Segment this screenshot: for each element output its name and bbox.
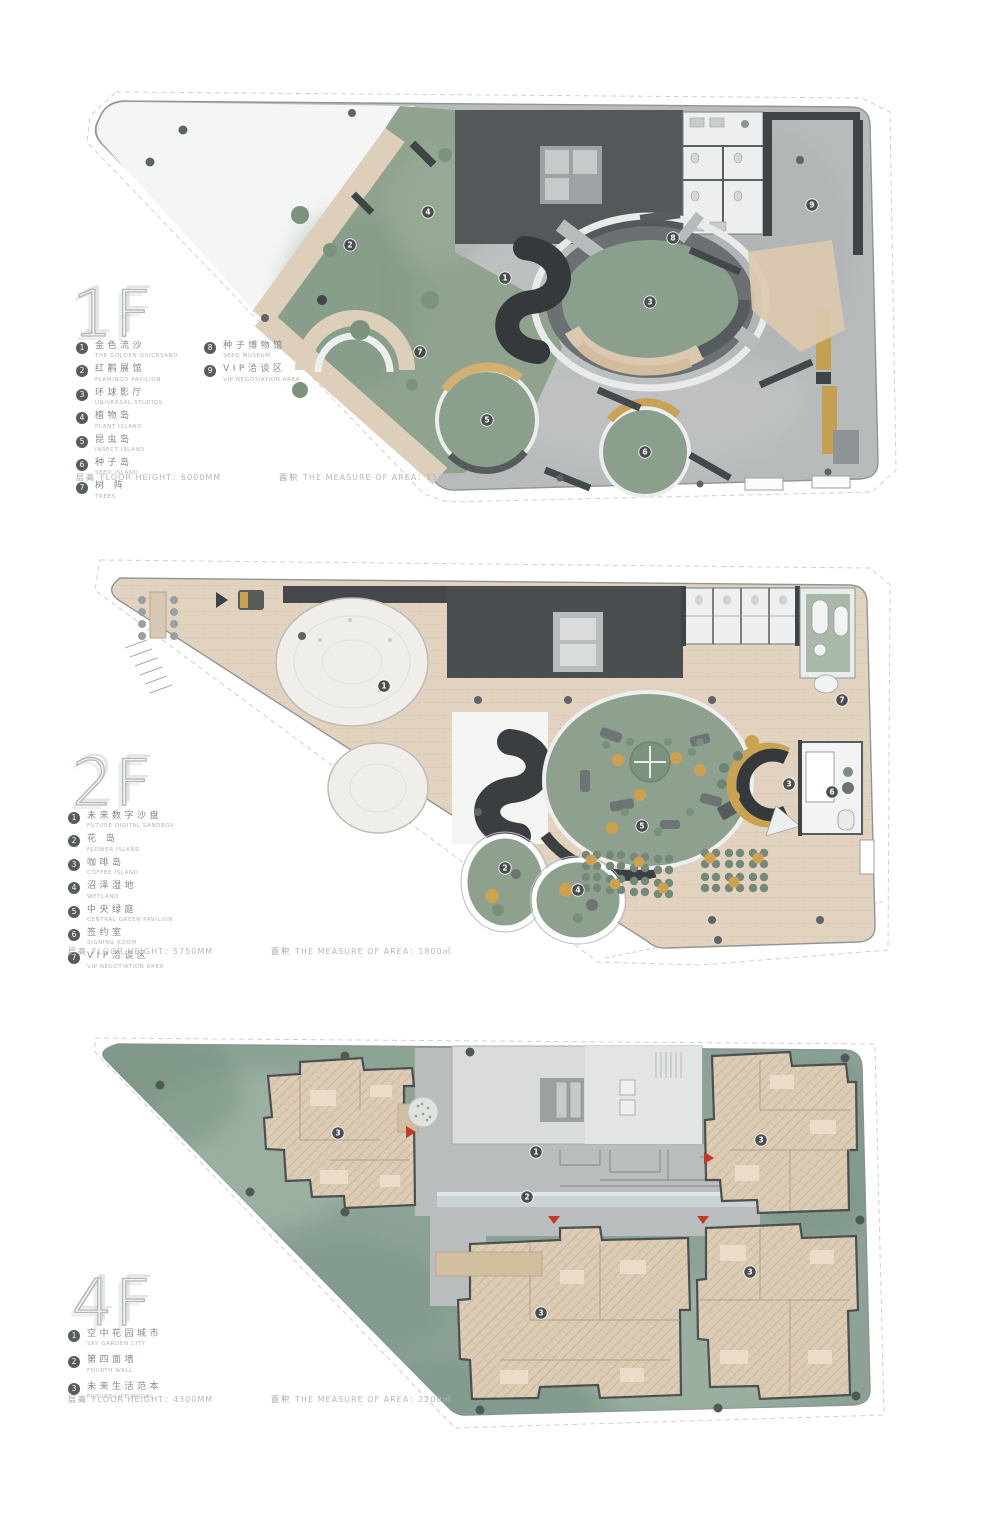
legend-item-en: PLANT ISLAND bbox=[95, 424, 142, 430]
legend-item: 3环球影厅UNIVERSAL STUDIOS bbox=[76, 389, 178, 406]
glass-bridge-highlight bbox=[437, 1192, 767, 1196]
legend-item-zh: 种子博物馆 bbox=[223, 342, 286, 352]
show-unit-d bbox=[697, 1224, 858, 1399]
legend-item: 2第四面墙FOURTH WALL bbox=[68, 1356, 162, 1373]
legend-item-en: CENTRAL GREEN PAVILION bbox=[87, 917, 173, 923]
floor-2f-plan: 1234567 bbox=[95, 560, 890, 965]
legend-item-zh: 第四面墙 bbox=[87, 1356, 137, 1366]
area-note: 面积THE MEASURE OF AREA：2200㎡ bbox=[271, 1394, 451, 1405]
entrance-door bbox=[860, 840, 874, 874]
legend-item-number: 6 bbox=[76, 459, 88, 471]
svg-text:8: 8 bbox=[670, 234, 675, 243]
legend-item-number: 8 bbox=[204, 342, 216, 354]
stair-hatch bbox=[125, 640, 172, 693]
svg-text:1: 1 bbox=[502, 274, 507, 283]
legend-item: 9VIP洽谈区VIP NEGOTIATION AREA bbox=[204, 365, 300, 382]
wall bbox=[772, 112, 860, 120]
legend-item: 2红鹳展馆FLAMINGO PAVILION bbox=[76, 365, 178, 382]
legend-item-number: 2 bbox=[68, 835, 80, 847]
legend-item: 3咖啡岛COFFEE ISLAND bbox=[68, 859, 174, 876]
spa-area bbox=[800, 588, 855, 693]
legend-item-en: FOURTH WALL bbox=[87, 1368, 137, 1374]
svg-text:7: 7 bbox=[839, 696, 844, 705]
floor-4f-plan: 123333 bbox=[60, 1030, 890, 1436]
svg-text:5: 5 bbox=[484, 416, 489, 425]
legend-item-zh: 种子岛 bbox=[95, 459, 138, 469]
wall bbox=[853, 120, 863, 255]
legend-item-zh: 咖啡岛 bbox=[87, 859, 138, 869]
area-note: 面积THE MEASURE OF AREA：1800㎡ bbox=[271, 946, 451, 957]
legend-item: 1未来数字沙盘FUTURE DIGITAL SANDBOX bbox=[68, 812, 174, 829]
legend-item-number: 9 bbox=[204, 365, 216, 377]
entrance-door bbox=[745, 478, 783, 490]
floor-height-note: 层高FLOOR HEIGHT：5750MM bbox=[68, 946, 213, 957]
footer-4f: 层高FLOOR HEIGHT：4300MM 面积THE MEASURE OF A… bbox=[68, 1394, 452, 1405]
legend-item-zh: 树 阵 bbox=[95, 482, 126, 492]
canopy bbox=[436, 1252, 542, 1276]
svg-text:2: 2 bbox=[347, 241, 352, 250]
floor-height-note: 层高FLOOR HEIGHT：4300MM bbox=[68, 1394, 213, 1405]
svg-text:3: 3 bbox=[647, 298, 652, 307]
legend-item: 6签约室SIGNING ROOM bbox=[68, 929, 174, 946]
legend-item-zh: 红鹳展馆 bbox=[95, 365, 161, 375]
svg-text:4: 4 bbox=[575, 886, 580, 895]
legend-item-en: COFFEE ISLAND bbox=[87, 870, 138, 876]
floor-title-4f: 4F bbox=[72, 1272, 154, 1336]
legend-item: 5中央绿庭CENTRAL GREEN PAVILION bbox=[68, 906, 174, 923]
legend-item-en: VIP NEGOTIATION AREA bbox=[223, 377, 300, 383]
legend-item-number: 1 bbox=[68, 1330, 80, 1342]
svg-text:1: 1 bbox=[533, 1148, 538, 1157]
legend-item-number: 7 bbox=[76, 482, 88, 494]
entrance-door bbox=[812, 476, 850, 488]
legend-item: 1空中花园城市SKY GARDEN CITY bbox=[68, 1330, 162, 1347]
legend-item-en: THE GOLDEN QUICKSAND bbox=[95, 353, 178, 359]
legend-item-zh: 未来生活范本 bbox=[87, 1383, 162, 1393]
legend-item: 8种子博物馆SEED MUSEUM bbox=[204, 342, 300, 359]
floor-height-note: 层高FLOOR HEIGHT：6000MM bbox=[76, 472, 221, 483]
svg-text:3: 3 bbox=[786, 780, 791, 789]
legend-item-en: SKY GARDEN CITY bbox=[87, 1341, 162, 1347]
legend-item-number: 1 bbox=[68, 812, 80, 824]
svg-text:6: 6 bbox=[642, 448, 647, 457]
svg-text:2: 2 bbox=[502, 864, 507, 873]
legend-item-en: FLAMINGO PAVILION bbox=[95, 377, 161, 383]
legend-item-en: SEED MUSEUM bbox=[223, 353, 286, 359]
legend-item-zh: 未来数字沙盘 bbox=[87, 812, 174, 822]
svg-text:6: 6 bbox=[829, 788, 834, 797]
svg-text:3: 3 bbox=[758, 1136, 763, 1145]
floor-title-1f: 1F bbox=[72, 283, 154, 347]
floor-title-2f: 2F bbox=[72, 752, 154, 816]
legend-item-zh: 植物岛 bbox=[95, 412, 142, 422]
svg-text:9: 9 bbox=[809, 201, 814, 210]
svg-text:5: 5 bbox=[639, 822, 644, 831]
service-core-4f bbox=[452, 1046, 702, 1144]
svg-text:3: 3 bbox=[538, 1309, 543, 1318]
legend-item-number: 3 bbox=[68, 1383, 80, 1395]
legend-item-en: FUTURE DIGITAL SANDBOX bbox=[87, 823, 174, 829]
legend-item-number: 5 bbox=[68, 906, 80, 918]
footer-1f: 层高FLOOR HEIGHT：6000MM 面积THE MEASURE OF A… bbox=[76, 472, 460, 483]
legend-item-number: 2 bbox=[68, 1356, 80, 1368]
svg-text:1: 1 bbox=[381, 682, 386, 691]
legend-item-number: 3 bbox=[76, 389, 88, 401]
legend-item-number: 2 bbox=[76, 365, 88, 377]
legend-item-number: 1 bbox=[76, 342, 88, 354]
legend-item-en: INSECT ISLAND bbox=[95, 447, 145, 453]
legend-item-number: 6 bbox=[68, 929, 80, 941]
legend-item: 4植物岛PLANT ISLAND bbox=[76, 412, 178, 429]
legend-item-zh: 中央绿庭 bbox=[87, 906, 173, 916]
legend-item: 2花 岛FLOWER ISLAND bbox=[68, 835, 174, 852]
legend-item-en: TREES bbox=[95, 494, 126, 500]
area-note: 面积THE MEASURE OF AREA：1500㎡ bbox=[279, 472, 459, 483]
legend-item-number: 4 bbox=[76, 412, 88, 424]
legend-item-en: VIP NEGOTIATION AREA bbox=[87, 964, 164, 970]
show-unit-b bbox=[705, 1052, 857, 1213]
svg-text:2: 2 bbox=[524, 1193, 529, 1202]
legend-item-en: UNIVERSAL STUDIOS bbox=[95, 400, 163, 406]
legend-item-number: 4 bbox=[68, 882, 80, 894]
legend-item-en: FLOWER ISLAND bbox=[87, 847, 140, 853]
legend-item: 1金色流沙THE GOLDEN QUICKSAND bbox=[76, 342, 178, 359]
legend-item-zh: 空中花园城市 bbox=[87, 1330, 162, 1340]
restrooms-2f bbox=[681, 586, 800, 646]
svg-text:3: 3 bbox=[335, 1129, 340, 1138]
svg-text:4: 4 bbox=[425, 208, 430, 217]
svg-text:7: 7 bbox=[417, 348, 422, 357]
legend-item-zh: 沼泽湿地 bbox=[87, 882, 137, 892]
legend-item-zh: 金色流沙 bbox=[95, 342, 178, 352]
legend-item-zh: 签约室 bbox=[87, 929, 137, 939]
floor-plan-sheet: 123456789 bbox=[0, 0, 1000, 1536]
footer-2f: 层高FLOOR HEIGHT：5750MM 面积THE MEASURE OF A… bbox=[68, 946, 452, 957]
legend-item-zh: VIP洽谈区 bbox=[223, 365, 300, 375]
legend-item-zh: 昆虫岛 bbox=[95, 436, 145, 446]
plans-canvas: 123456789 bbox=[60, 88, 920, 1436]
legend-item-zh: 花 岛 bbox=[87, 835, 140, 845]
legend-item: 7树 阵TREES bbox=[76, 482, 178, 499]
legend-item: 4沼泽湿地WETLAND bbox=[68, 882, 174, 899]
legend-item-en: WETLAND bbox=[87, 894, 137, 900]
svg-text:3: 3 bbox=[747, 1268, 752, 1277]
legend-item-number: 5 bbox=[76, 436, 88, 448]
tree bbox=[408, 1097, 438, 1127]
legend-item-zh: 环球影厅 bbox=[95, 389, 163, 399]
legend-item-number: 3 bbox=[68, 859, 80, 871]
legend-item: 5昆虫岛INSECT ISLAND bbox=[76, 436, 178, 453]
